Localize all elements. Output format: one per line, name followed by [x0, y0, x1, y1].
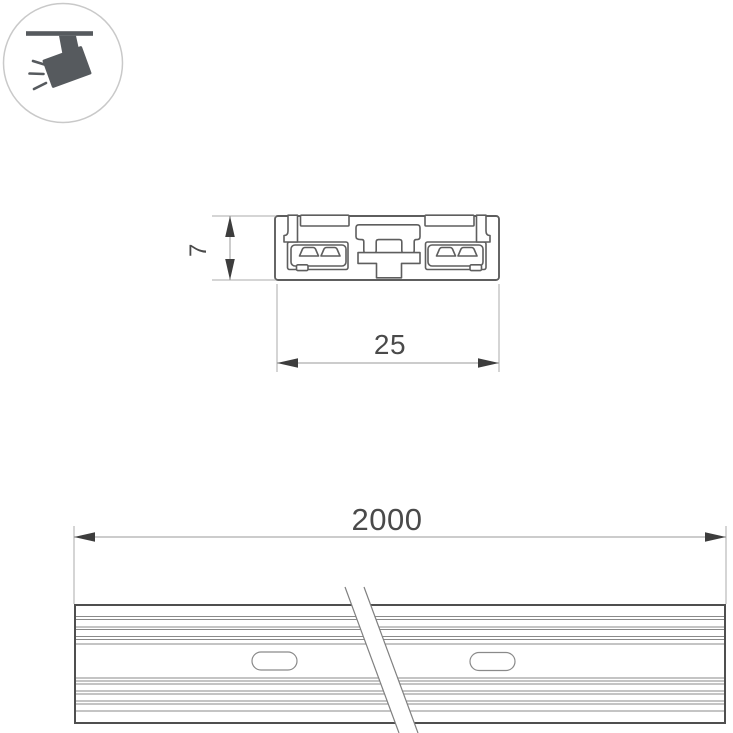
dim-arrow-down [225, 259, 235, 280]
dim-arrow-right [705, 532, 726, 542]
dim-arrow-left [277, 358, 298, 368]
length-dimension-label: 2000 [352, 502, 423, 537]
contact-strip [321, 248, 340, 257]
contact-strip [437, 248, 456, 257]
technical-drawing-canvas: 7 25 [0, 0, 733, 733]
dim-arrow-right [478, 358, 499, 368]
top-recess-right [425, 215, 474, 226]
width-dimension-label: 25 [374, 329, 406, 360]
length-dimension: 2000 [74, 502, 726, 604]
long-profile-view [75, 587, 725, 733]
contact-strip [458, 248, 477, 257]
top-recess-left [301, 215, 350, 226]
height-dimension-label: 7 [185, 243, 212, 257]
contact-strip [300, 248, 319, 257]
track-bar-shape [26, 31, 93, 36]
technical-drawing-page: 7 25 [0, 0, 733, 733]
insulator-foot-right [470, 265, 482, 271]
mounting-slot-hole [252, 652, 297, 670]
insulator-foot-left [297, 265, 309, 271]
mounting-slot-hole [470, 653, 515, 671]
dim-arrow-left [74, 532, 95, 542]
track-light-icon [4, 4, 123, 123]
dim-arrow-up [225, 216, 235, 237]
cross-section-view [275, 215, 499, 280]
extension-lines [74, 526, 726, 604]
